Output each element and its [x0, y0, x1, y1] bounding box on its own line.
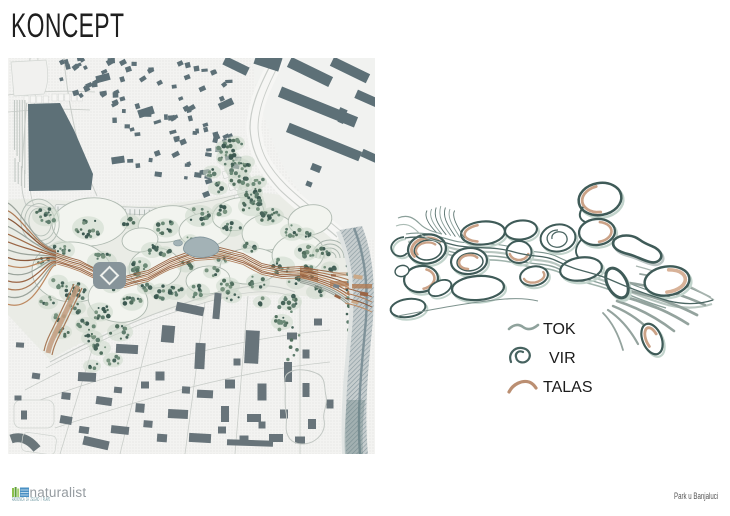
svg-text:TALAS: TALAS — [543, 379, 593, 396]
svg-text:VIR: VIR — [549, 350, 576, 367]
svg-text:TOK: TOK — [543, 321, 576, 338]
